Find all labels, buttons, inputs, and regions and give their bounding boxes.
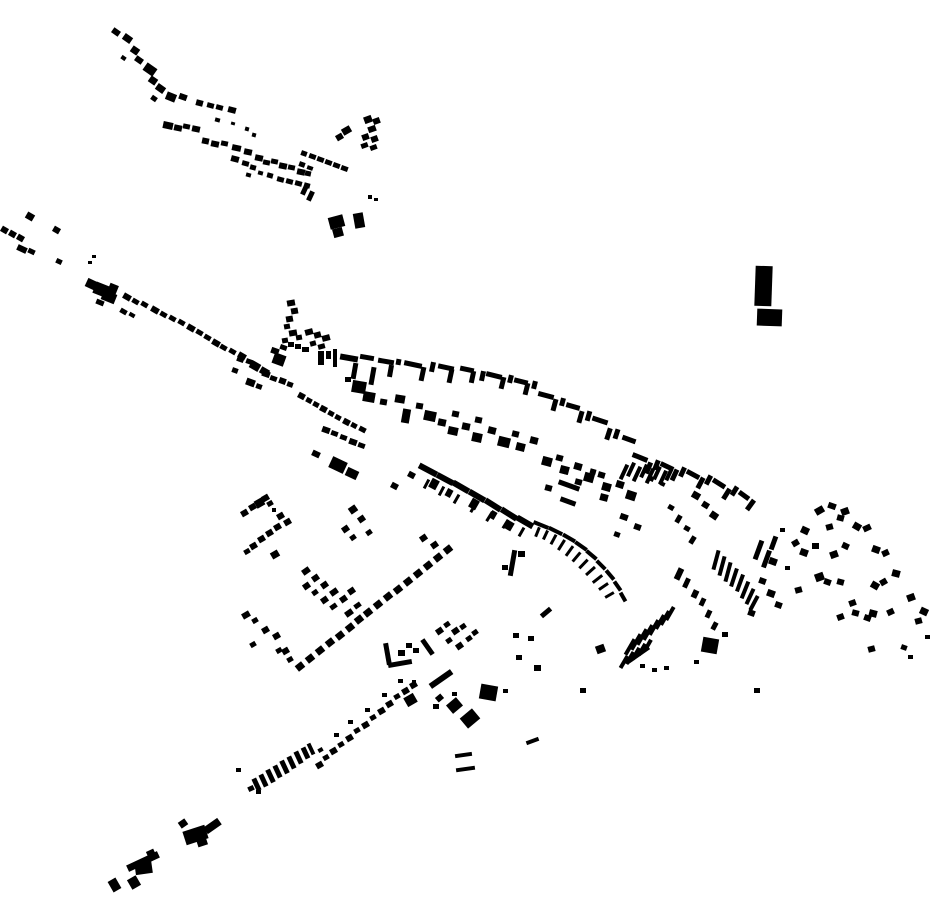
building-footprint bbox=[678, 466, 687, 477]
building-footprint bbox=[231, 367, 238, 374]
building-footprint bbox=[502, 565, 508, 570]
building-footprint bbox=[403, 576, 414, 586]
building-footprint bbox=[316, 156, 324, 163]
building-footprint bbox=[215, 104, 223, 111]
building-footprint bbox=[155, 83, 166, 94]
building-footprint bbox=[361, 721, 370, 730]
building-footprint bbox=[541, 456, 553, 467]
building-footprint bbox=[526, 737, 540, 745]
building-footprint bbox=[266, 500, 274, 507]
building-footprint bbox=[516, 655, 522, 660]
building-footprint bbox=[278, 377, 287, 385]
building-footprint bbox=[390, 482, 399, 491]
building-footprint bbox=[632, 452, 649, 463]
building-footprint bbox=[613, 531, 620, 538]
building-footprint bbox=[312, 401, 320, 408]
building-footprint bbox=[891, 569, 901, 578]
building-footprint bbox=[534, 527, 541, 537]
building-footprint bbox=[881, 549, 890, 557]
building-footprint bbox=[423, 479, 430, 489]
building-footprint bbox=[619, 513, 629, 521]
building-footprint bbox=[794, 586, 802, 594]
building-footprint bbox=[297, 392, 306, 401]
building-footprint bbox=[318, 351, 324, 365]
building-footprint bbox=[914, 617, 922, 625]
building-footprint bbox=[305, 653, 316, 663]
building-footprint bbox=[445, 637, 453, 645]
building-footprint bbox=[350, 422, 358, 429]
building-footprint bbox=[446, 697, 463, 714]
building-footprint bbox=[245, 127, 250, 132]
building-footprint bbox=[712, 478, 727, 490]
building-footprint bbox=[412, 680, 416, 684]
building-footprint bbox=[372, 117, 381, 125]
building-footprint bbox=[321, 334, 330, 342]
building-footprint bbox=[334, 733, 339, 737]
building-footprint bbox=[747, 609, 756, 617]
building-footprint bbox=[333, 349, 337, 367]
building-footprint bbox=[111, 27, 121, 37]
building-footprint bbox=[613, 580, 623, 591]
building-footprint bbox=[585, 566, 596, 576]
building-footprint bbox=[311, 589, 319, 597]
building-footprint bbox=[814, 505, 825, 516]
building-footprint bbox=[729, 568, 739, 587]
building-footprint bbox=[717, 556, 726, 576]
building-footprint bbox=[908, 655, 913, 659]
building-footprint bbox=[122, 292, 132, 301]
building-footprint bbox=[249, 641, 257, 648]
building-footprint bbox=[791, 539, 800, 548]
building-footprint bbox=[337, 741, 345, 748]
building-footprint bbox=[178, 93, 188, 101]
building-footprint bbox=[341, 125, 352, 136]
building-footprint bbox=[365, 708, 370, 712]
building-footprint bbox=[348, 438, 358, 446]
building-footprint bbox=[276, 512, 285, 521]
building-footprint bbox=[131, 298, 140, 306]
building-footprint bbox=[585, 411, 593, 422]
map-canvas bbox=[0, 0, 930, 924]
building-footprint bbox=[236, 768, 241, 772]
building-footprint bbox=[407, 471, 416, 480]
building-footprint bbox=[311, 574, 320, 583]
building-footprint bbox=[487, 426, 496, 435]
building-footprint bbox=[683, 525, 691, 532]
building-footprint bbox=[16, 244, 28, 254]
building-footprint bbox=[479, 371, 486, 382]
building-footprint bbox=[361, 133, 370, 141]
building-footprint bbox=[919, 607, 929, 617]
building-footprint bbox=[393, 584, 404, 594]
building-footprint bbox=[401, 687, 410, 696]
building-footprint bbox=[258, 774, 268, 788]
building-footprint bbox=[315, 645, 326, 655]
building-footprint bbox=[580, 688, 586, 693]
building-footprint bbox=[52, 226, 61, 235]
building-footprint bbox=[191, 125, 200, 133]
building-footprint bbox=[177, 319, 186, 327]
building-footprint bbox=[723, 562, 732, 582]
building-footprint bbox=[374, 198, 378, 201]
building-footprint bbox=[451, 627, 460, 636]
building-footprint bbox=[231, 144, 241, 152]
building-footprint bbox=[353, 727, 361, 734]
building-footprint bbox=[435, 627, 444, 636]
building-footprint bbox=[322, 754, 330, 761]
building-footprint bbox=[348, 720, 353, 724]
building-footprint bbox=[701, 637, 719, 655]
building-footprint bbox=[195, 99, 203, 107]
building-footprint bbox=[388, 659, 413, 668]
building-footprint bbox=[722, 632, 728, 637]
building-footprint bbox=[298, 161, 305, 168]
building-footprint bbox=[120, 55, 126, 61]
building-footprint bbox=[599, 493, 609, 502]
building-footprint bbox=[533, 520, 549, 530]
building-footprint bbox=[168, 315, 177, 323]
building-footprint bbox=[704, 474, 713, 485]
building-footprint bbox=[429, 669, 454, 689]
building-footprint bbox=[345, 467, 360, 480]
building-footprint bbox=[503, 520, 514, 532]
building-footprint bbox=[544, 484, 552, 492]
building-footprint bbox=[604, 428, 612, 441]
building-footprint bbox=[605, 569, 616, 581]
building-footprint bbox=[345, 734, 354, 743]
building-footprint bbox=[667, 504, 675, 511]
building-footprint bbox=[758, 577, 767, 585]
building-footprint bbox=[557, 539, 566, 551]
building-footprint bbox=[295, 344, 301, 349]
building-footprint bbox=[419, 534, 428, 543]
building-footprint bbox=[370, 135, 379, 143]
building-footprint bbox=[444, 488, 453, 498]
building-footprint bbox=[286, 756, 296, 770]
building-footprint bbox=[769, 536, 778, 551]
building-footprint bbox=[595, 644, 606, 655]
building-footprint bbox=[625, 490, 637, 502]
building-footprint bbox=[183, 123, 191, 129]
building-footprint bbox=[328, 456, 348, 474]
building-footprint bbox=[271, 158, 279, 164]
building-footprint bbox=[128, 312, 135, 318]
building-footprint bbox=[841, 542, 850, 550]
building-footprint bbox=[674, 514, 682, 523]
building-footprint bbox=[497, 436, 511, 449]
building-footprint bbox=[398, 679, 403, 683]
building-footprint bbox=[753, 540, 765, 561]
building-footprint bbox=[471, 629, 479, 637]
building-footprint bbox=[273, 523, 282, 532]
building-footprint bbox=[585, 549, 598, 560]
building-footprint bbox=[691, 589, 700, 599]
building-footprint bbox=[309, 340, 316, 346]
building-footprint bbox=[500, 507, 518, 522]
building-footprint bbox=[780, 528, 785, 532]
building-footprint bbox=[766, 589, 776, 598]
building-footprint bbox=[319, 405, 328, 414]
building-footprint bbox=[119, 308, 128, 316]
building-footprint bbox=[455, 752, 472, 758]
building-footprint bbox=[302, 582, 311, 591]
building-footprint bbox=[321, 426, 331, 434]
building-footprint bbox=[249, 164, 256, 170]
building-footprint bbox=[829, 550, 839, 559]
building-footprint bbox=[334, 414, 342, 421]
building-footprint bbox=[201, 137, 209, 144]
building-footprint bbox=[269, 375, 277, 382]
building-footprint bbox=[278, 162, 287, 170]
building-footprint bbox=[263, 159, 271, 165]
building-footprint bbox=[601, 482, 612, 492]
building-footprint bbox=[368, 367, 376, 386]
building-footprint bbox=[622, 435, 637, 444]
building-footprint bbox=[387, 365, 394, 378]
building-footprint bbox=[518, 551, 525, 557]
building-footprint bbox=[311, 450, 321, 459]
building-footprint bbox=[428, 478, 440, 491]
building-footprint bbox=[340, 165, 348, 172]
building-footprint bbox=[559, 397, 566, 406]
building-footprint bbox=[341, 525, 350, 534]
building-footprint bbox=[511, 430, 519, 438]
building-footprint bbox=[265, 769, 275, 784]
building-footprint bbox=[362, 391, 376, 403]
building-footprint bbox=[254, 154, 263, 162]
building-footprint bbox=[284, 324, 291, 330]
building-footprint bbox=[320, 581, 329, 590]
building-footprint bbox=[430, 541, 439, 550]
building-footprint bbox=[150, 305, 160, 314]
building-footprint bbox=[360, 142, 368, 149]
building-footprint bbox=[465, 635, 473, 643]
building-footprint bbox=[619, 592, 627, 603]
building-footprint bbox=[353, 212, 365, 229]
building-footprint bbox=[130, 45, 141, 55]
building-footprint bbox=[272, 765, 282, 779]
building-footprint bbox=[335, 133, 344, 142]
building-footprint bbox=[305, 170, 312, 176]
building-footprint bbox=[108, 878, 122, 893]
building-footprint bbox=[385, 700, 394, 709]
building-footprint bbox=[455, 642, 464, 651]
building-footprint bbox=[768, 557, 778, 566]
building-footprint bbox=[287, 299, 296, 306]
building-footprint bbox=[369, 714, 377, 721]
building-footprint bbox=[452, 480, 471, 494]
building-footprint bbox=[345, 622, 356, 632]
building-footprint bbox=[122, 33, 133, 44]
building-footprint bbox=[401, 408, 411, 423]
figure-ground-map bbox=[0, 0, 930, 924]
building-footprint bbox=[800, 526, 810, 536]
building-footprint bbox=[870, 580, 880, 590]
building-footprint bbox=[251, 617, 259, 624]
building-footprint bbox=[368, 195, 372, 199]
building-footprint bbox=[879, 578, 888, 587]
building-footprint bbox=[508, 550, 517, 576]
building-footprint bbox=[335, 630, 346, 640]
building-footprint bbox=[300, 184, 309, 195]
building-footprint bbox=[867, 645, 875, 653]
building-footprint bbox=[705, 609, 713, 618]
building-footprint bbox=[283, 518, 292, 527]
building-footprint bbox=[247, 785, 255, 792]
building-footprint bbox=[143, 62, 158, 76]
building-footprint bbox=[538, 391, 555, 400]
building-footprint bbox=[241, 610, 251, 619]
building-footprint bbox=[785, 566, 790, 570]
building-footprint bbox=[774, 601, 783, 609]
building-footprint bbox=[219, 344, 228, 352]
building-footprint bbox=[825, 523, 833, 531]
building-footprint bbox=[230, 155, 239, 163]
building-footprint bbox=[363, 115, 373, 124]
building-footprint bbox=[329, 747, 338, 756]
building-footprint bbox=[363, 607, 374, 617]
building-footprint bbox=[691, 490, 701, 500]
building-footprint bbox=[578, 559, 588, 570]
building-footprint bbox=[266, 172, 273, 178]
building-footprint bbox=[173, 124, 182, 132]
building-footprint bbox=[295, 661, 306, 671]
building-footprint bbox=[456, 766, 475, 773]
building-footprint bbox=[288, 342, 294, 347]
building-footprint bbox=[840, 507, 850, 516]
building-footprint bbox=[211, 338, 221, 347]
building-footprint bbox=[302, 347, 309, 352]
building-footprint bbox=[127, 875, 141, 890]
building-footprint bbox=[416, 402, 424, 409]
building-footprint bbox=[484, 498, 502, 513]
building-footprint bbox=[351, 363, 359, 380]
building-footprint bbox=[243, 548, 251, 555]
building-footprint bbox=[373, 599, 384, 609]
building-footprint bbox=[140, 301, 149, 309]
building-footprint bbox=[365, 529, 373, 537]
building-footprint bbox=[827, 502, 837, 510]
building-footprint bbox=[195, 329, 204, 337]
building-footprint bbox=[288, 164, 296, 170]
building-footprint bbox=[291, 307, 299, 314]
building-footprint bbox=[754, 688, 760, 693]
building-footprint bbox=[886, 608, 895, 616]
building-footprint bbox=[848, 599, 857, 607]
building-footprint bbox=[534, 665, 541, 671]
building-footprint bbox=[279, 760, 289, 775]
building-footprint bbox=[357, 515, 366, 524]
building-footprint bbox=[329, 587, 339, 597]
building-footprint bbox=[443, 544, 454, 554]
building-footprint bbox=[516, 515, 535, 529]
building-footprint bbox=[221, 140, 229, 146]
building-footprint bbox=[304, 328, 313, 336]
building-footprint bbox=[460, 708, 481, 728]
building-footprint bbox=[308, 153, 316, 160]
building-footprint bbox=[435, 693, 444, 702]
building-footprint bbox=[418, 463, 438, 478]
building-footprint bbox=[925, 635, 930, 639]
building-footprint bbox=[246, 172, 252, 177]
building-footprint bbox=[836, 613, 845, 621]
building-footprint bbox=[367, 125, 377, 133]
building-footprint bbox=[178, 818, 189, 828]
building-footprint bbox=[688, 535, 696, 544]
building-footprint bbox=[383, 643, 392, 666]
building-footprint bbox=[332, 162, 340, 169]
building-footprint bbox=[358, 426, 367, 434]
building-footprint bbox=[344, 608, 354, 618]
building-footprint bbox=[640, 664, 645, 668]
building-footprint bbox=[613, 428, 621, 439]
building-footprint bbox=[404, 360, 423, 369]
building-footprint bbox=[134, 55, 144, 65]
building-footprint bbox=[339, 434, 347, 441]
building-footprint bbox=[279, 344, 287, 351]
building-footprint bbox=[228, 348, 237, 356]
building-footprint bbox=[447, 369, 455, 384]
building-footprint bbox=[900, 644, 907, 651]
building-footprint bbox=[342, 418, 351, 427]
building-footprint bbox=[701, 501, 710, 510]
building-footprint bbox=[275, 647, 283, 654]
building-footprint bbox=[329, 602, 338, 610]
building-footprint bbox=[317, 747, 323, 753]
building-footprint bbox=[301, 566, 311, 576]
building-footprint bbox=[420, 638, 434, 656]
building-footprint bbox=[148, 75, 159, 85]
building-footprint bbox=[252, 133, 257, 138]
building-footprint bbox=[317, 343, 325, 350]
building-footprint bbox=[241, 160, 249, 167]
building-footprint bbox=[378, 358, 395, 366]
building-footprint bbox=[88, 261, 92, 264]
building-footprint bbox=[276, 176, 284, 183]
building-footprint bbox=[906, 593, 916, 602]
building-footprint bbox=[320, 596, 329, 605]
building-footprint bbox=[437, 418, 446, 427]
building-footprint bbox=[711, 550, 720, 570]
building-footprint bbox=[438, 486, 445, 496]
building-footprint bbox=[528, 636, 534, 641]
building-footprint bbox=[328, 214, 346, 229]
building-footprint bbox=[851, 609, 859, 617]
building-footprint bbox=[633, 523, 642, 531]
building-footprint bbox=[403, 693, 418, 707]
building-footprint bbox=[325, 637, 336, 647]
building-footprint bbox=[210, 140, 219, 148]
building-footprint bbox=[398, 650, 405, 656]
building-footprint bbox=[261, 626, 270, 635]
building-footprint bbox=[327, 410, 335, 417]
building-footprint bbox=[738, 490, 751, 501]
building-footprint bbox=[419, 367, 427, 382]
building-footprint bbox=[433, 552, 444, 562]
building-footprint bbox=[566, 402, 581, 411]
building-footprint bbox=[55, 258, 63, 265]
building-footprint bbox=[270, 549, 280, 559]
building-footprint bbox=[348, 504, 359, 514]
building-footprint bbox=[423, 410, 437, 422]
building-footprint bbox=[799, 548, 809, 557]
building-footprint bbox=[324, 159, 332, 166]
building-footprint bbox=[203, 334, 212, 342]
building-footprint bbox=[339, 595, 348, 604]
building-footprint bbox=[413, 648, 419, 653]
building-footprint bbox=[574, 540, 588, 551]
building-footprint bbox=[694, 660, 699, 664]
